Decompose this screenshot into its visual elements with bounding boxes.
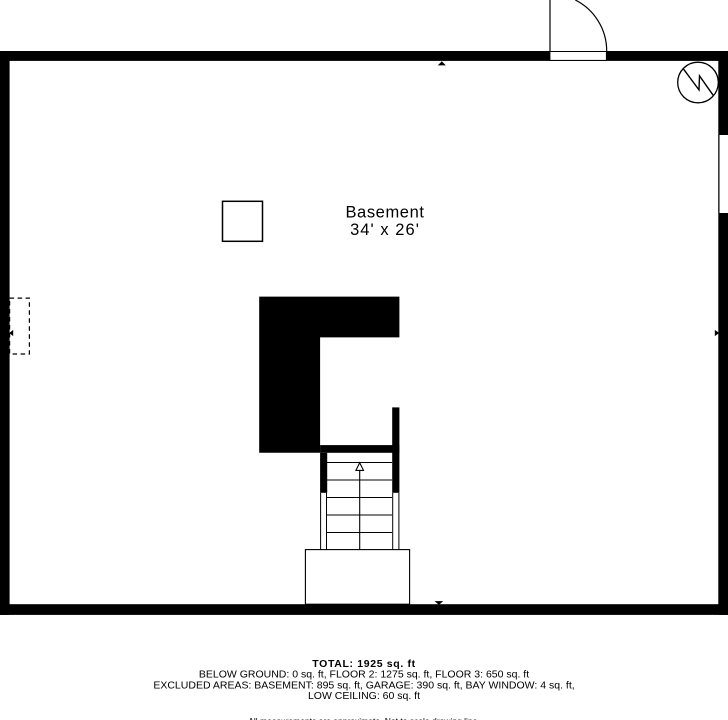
svg-text:All measurements are approxima: All measurements are approximate. Not to…: [248, 716, 480, 720]
svg-text:34' x 26': 34' x 26': [350, 221, 420, 239]
svg-text:LOW CEILING: 60 sq. ft: LOW CEILING: 60 sq. ft: [308, 690, 420, 702]
svg-text:Basement: Basement: [345, 204, 424, 222]
